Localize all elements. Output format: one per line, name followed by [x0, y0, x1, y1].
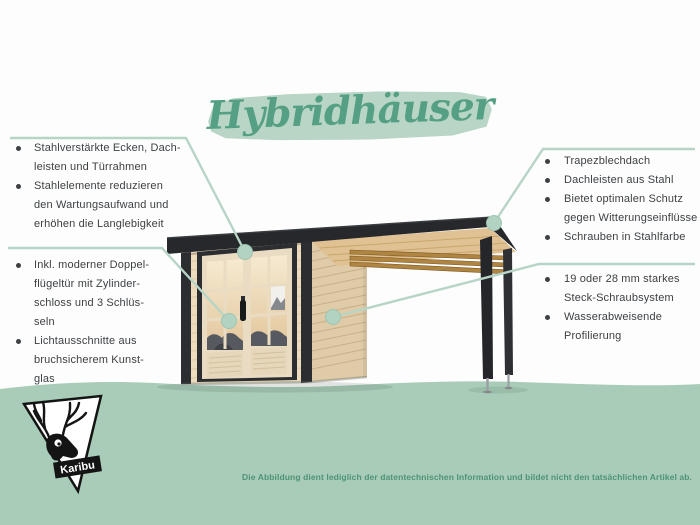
callout-item: Trapezblechdach — [543, 152, 698, 171]
corner-trim-right — [301, 241, 312, 383]
callout-item: 19 oder 28 mm starkes Steck-Schraubsyste… — [543, 270, 698, 308]
callout-text: Stahlelemente reduzieren den Wartungsauf… — [34, 177, 195, 234]
callout-text: 19 oder 28 mm starkes Steck-Schraubsyste… — [564, 270, 698, 308]
bullet-dot — [16, 263, 21, 268]
callout-text: Dachleisten aus Stahl — [564, 171, 698, 190]
callout-top-left: Stahlverstärkte Ecken, Dach- leisten und… — [10, 139, 195, 234]
bullet-dot — [545, 159, 550, 164]
callout-item: Inkl. moderner Doppel- flügeltür mit Zyl… — [10, 256, 195, 332]
infographic-page: Hybridhäuser Stahlverstärkte Ecken, Dach… — [0, 0, 700, 525]
callout-item: Schrauben in Stahlfarbe — [543, 228, 698, 247]
bullet-dot — [545, 197, 550, 202]
page-title: Hybridhäuser — [199, 81, 501, 141]
callout-dot-door-frame — [238, 245, 253, 260]
double-door — [197, 243, 297, 382]
callout-top-right: Trapezblechdach Dachleisten aus Stahl Bi… — [543, 152, 698, 247]
callout-text: Inkl. moderner Doppel- flügeltür mit Zyl… — [34, 256, 195, 332]
callout-item: Stahlelemente reduzieren den Wartungsauf… — [10, 177, 195, 234]
callout-text: Schrauben in Stahlfarbe — [564, 228, 698, 247]
callout-item: Lichtausschnitte aus bruchsicherem Kunst… — [10, 332, 195, 389]
callout-dot-roof — [487, 216, 502, 231]
title-banner: Hybridhäuser — [200, 84, 500, 146]
bullet-dot — [545, 235, 550, 240]
callout-bottom-left: Inkl. moderner Doppel- flügeltür mit Zyl… — [10, 256, 195, 389]
callout-dot-door-glass — [222, 314, 237, 329]
karibu-logo: Karibu — [10, 390, 115, 510]
callout-text: Bietet optimalen Schutz gegen Witterungs… — [564, 190, 698, 228]
callout-item: Bietet optimalen Schutz gegen Witterungs… — [543, 190, 698, 228]
bullet-dot — [16, 184, 21, 189]
bullet-dot — [545, 178, 550, 183]
callout-text: Lichtausschnitte aus bruchsicherem Kunst… — [34, 332, 195, 389]
bullet-dot — [16, 339, 21, 344]
callout-text: Stahlverstärkte Ecken, Dach- leisten und… — [34, 139, 195, 177]
callout-item: Wasserabweisende Profilierung — [543, 308, 698, 346]
disclaimer-text: Die Abbildung dient lediglich der datent… — [242, 472, 692, 482]
callout-text: Wasserabweisende Profilierung — [564, 308, 698, 346]
callout-bottom-right: 19 oder 28 mm starkes Steck-Schraubsyste… — [543, 270, 698, 346]
callout-item: Dachleisten aus Stahl — [543, 171, 698, 190]
callout-text: Trapezblechdach — [564, 152, 698, 171]
bullet-dot — [16, 146, 21, 151]
bullet-dot — [545, 277, 550, 282]
callout-item: Stahlverstärkte Ecken, Dach- leisten und… — [10, 139, 195, 177]
callout-dot-wall — [326, 310, 341, 325]
bullet-dot — [545, 315, 550, 320]
